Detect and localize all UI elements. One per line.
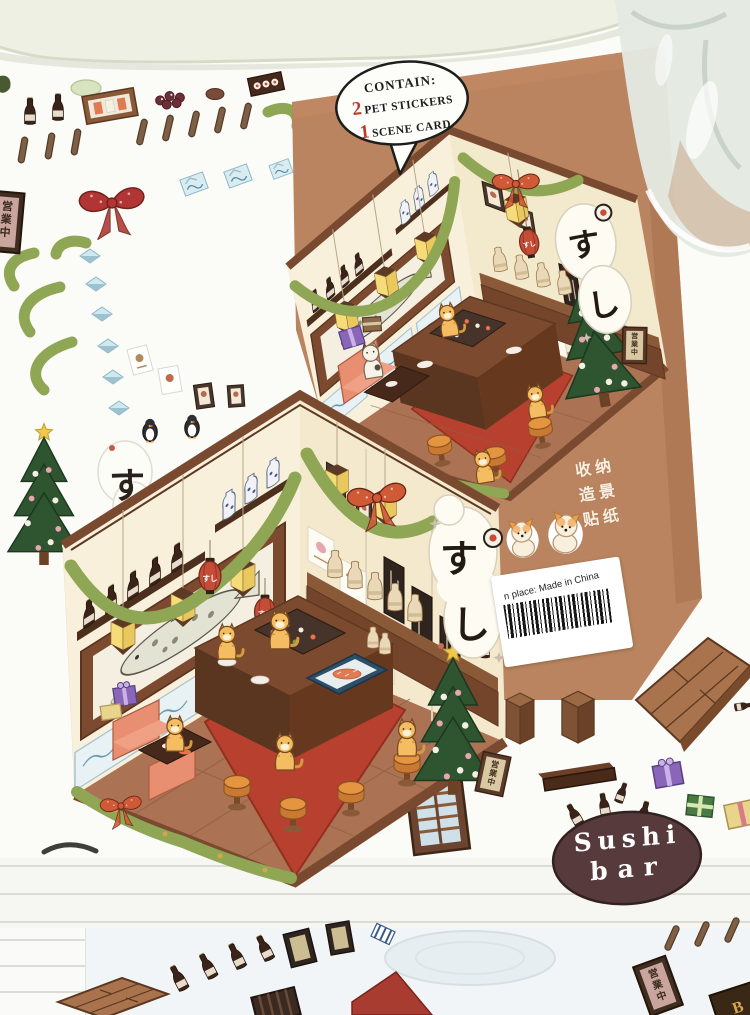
svg-text:営: 営 [631, 331, 638, 340]
gift-sticker-green [686, 795, 714, 818]
scene-card-count: 1 [359, 121, 371, 143]
svg-text:す: す [565, 224, 603, 267]
frame-sticker [326, 921, 354, 955]
bottom-photo-strip: 営 業 中 B [58, 917, 750, 1015]
plate-sticker [206, 89, 224, 100]
sushi-bubble-text: Sushi bar [553, 818, 703, 891]
open-sign-plaque-left: 営 業 中 [0, 191, 25, 254]
open-sign-char: 営 [1, 199, 13, 214]
svg-text:業: 業 [630, 339, 639, 348]
svg-text:し: し [585, 283, 623, 326]
svg-text:し: し [452, 603, 490, 647]
svg-text:す: す [440, 537, 478, 581]
open-sign-char: 中 [0, 225, 11, 240]
product-photo: すし [0, 0, 750, 1015]
mini-card-sticker [158, 365, 182, 394]
back-open-sign: 営 業 中 [622, 327, 647, 363]
svg-text:中: 中 [631, 347, 638, 356]
pet-sticker-count: 2 [351, 98, 363, 120]
wood-block-sticker [562, 691, 594, 743]
wood-block-sticker [506, 693, 534, 744]
